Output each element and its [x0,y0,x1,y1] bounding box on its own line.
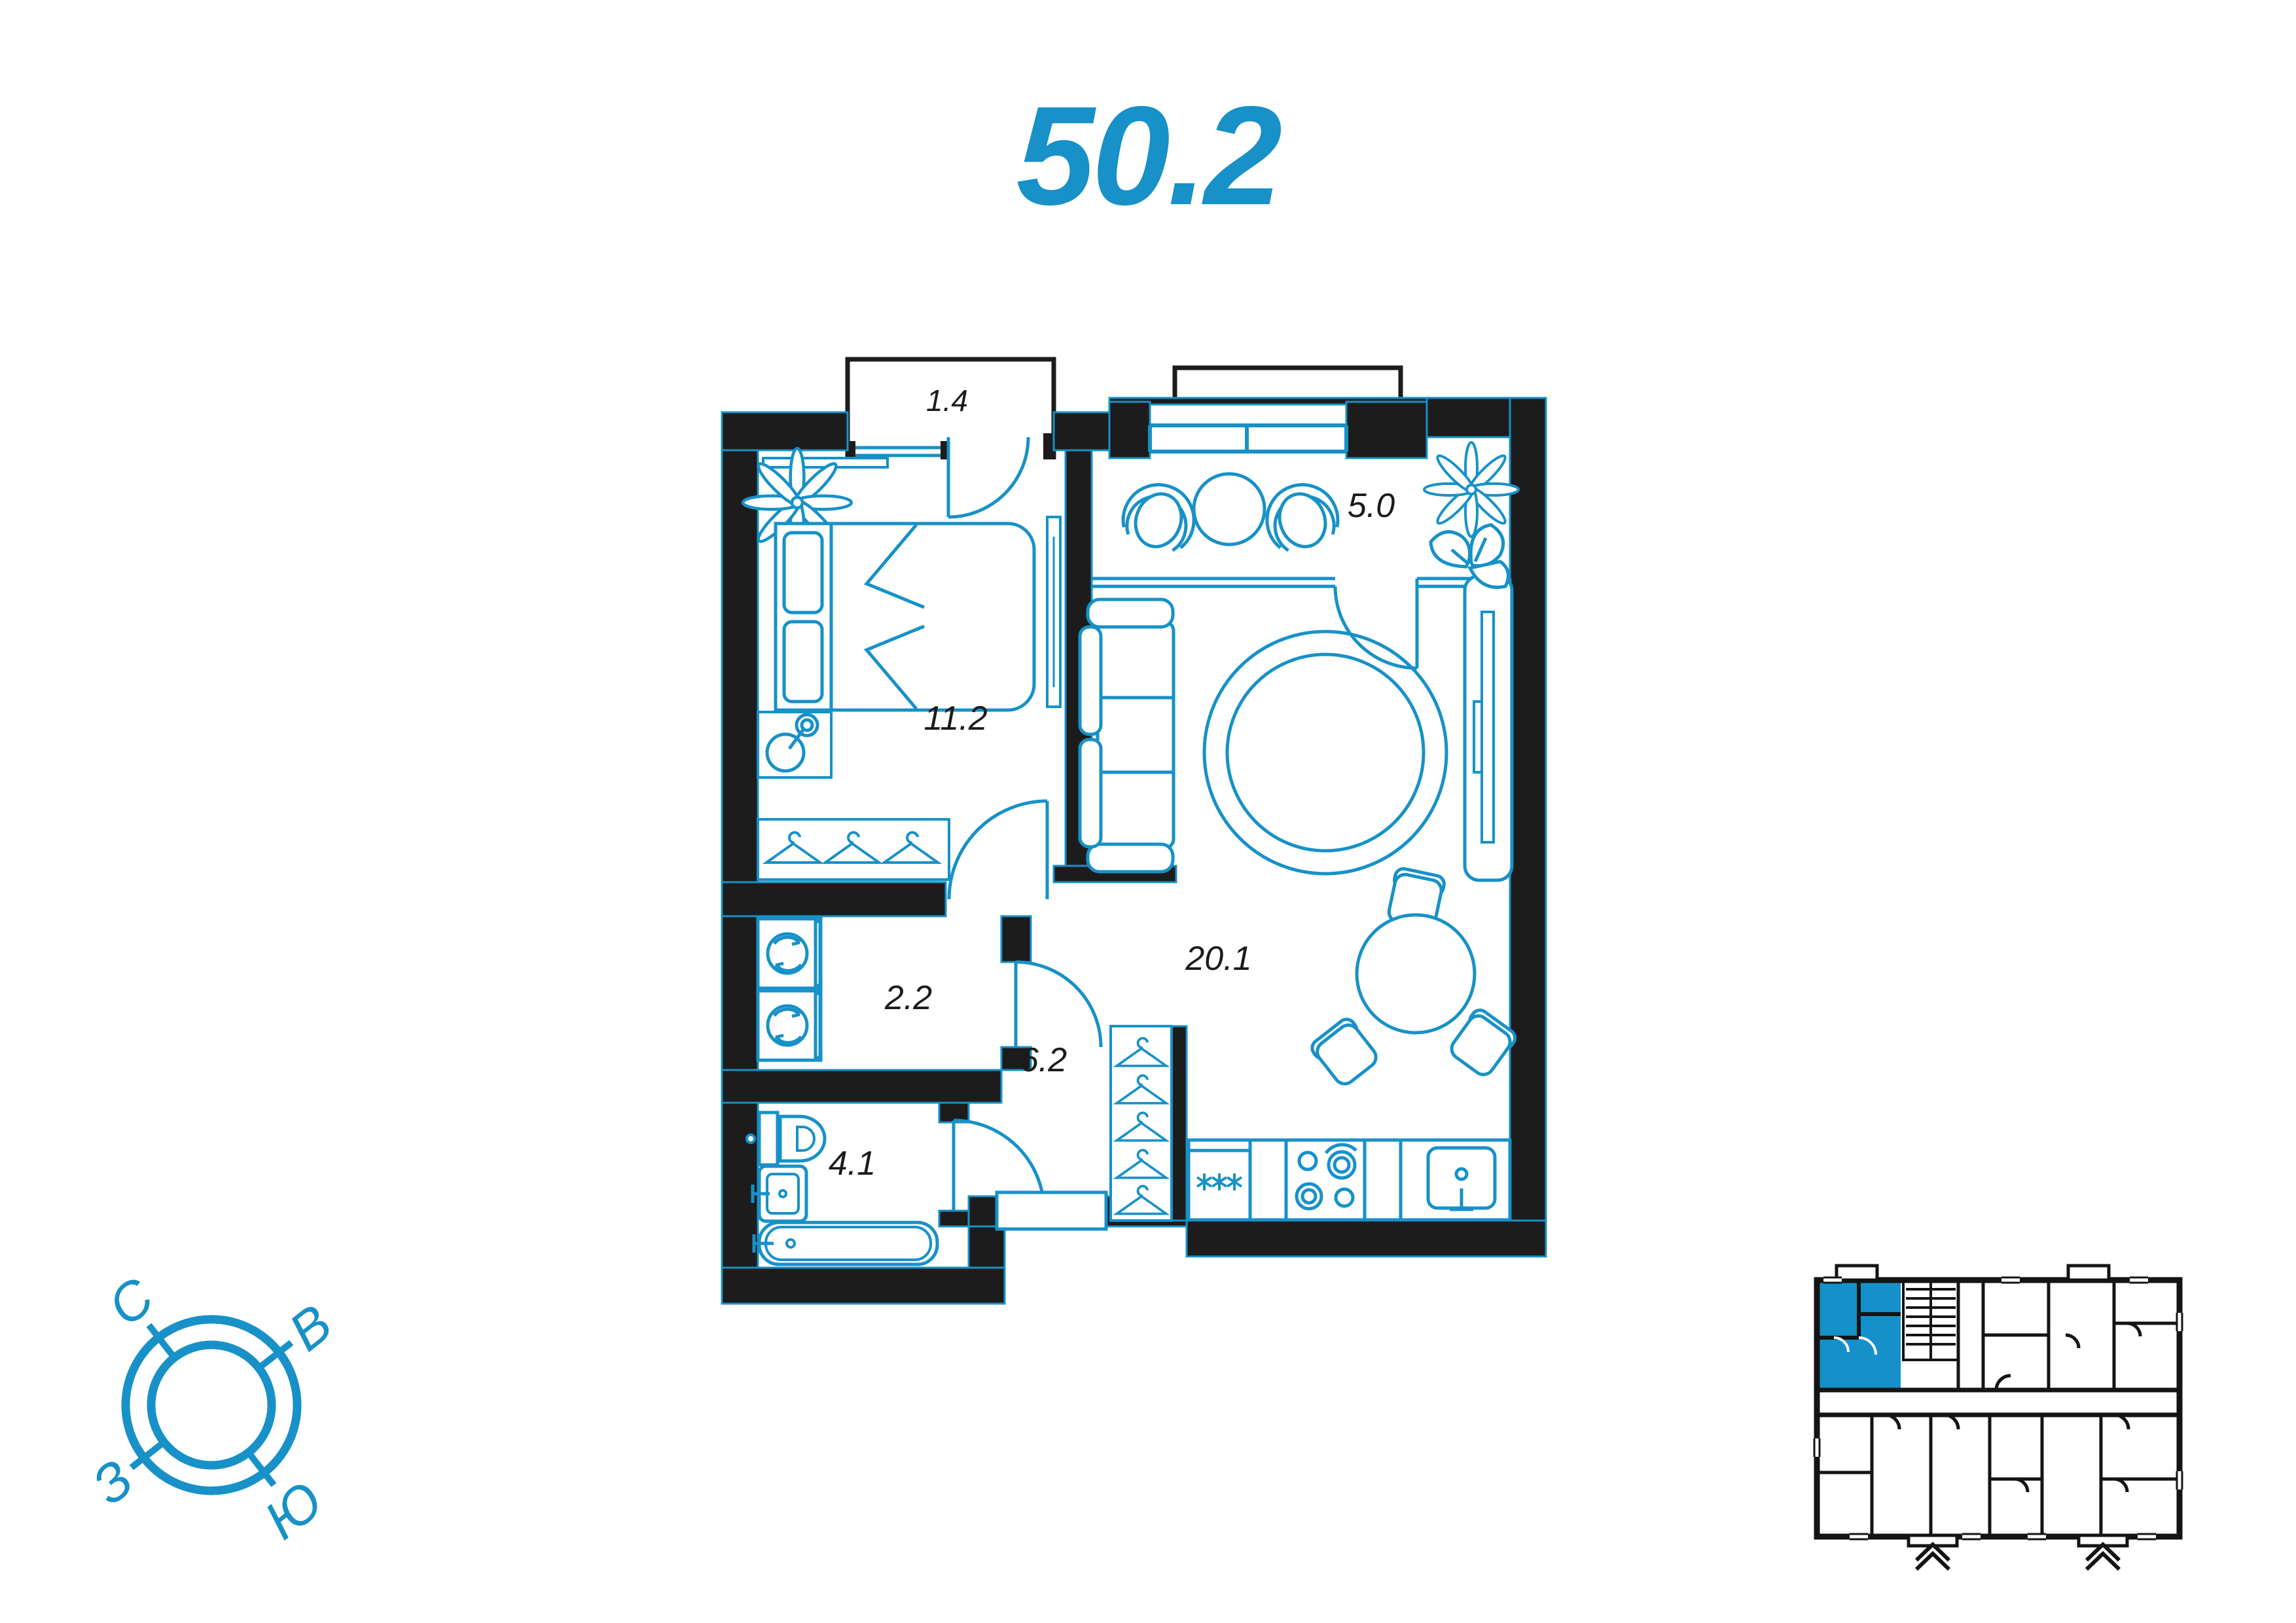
key-plan [1814,1266,2182,1569]
room-label-balcony: 1.4 [926,383,968,418]
entrance-door [997,1192,1106,1229]
key-plan-corridor [1817,1390,2179,1415]
room-label-bedroom: 11.2 [924,700,987,738]
bathtub-icon [753,1222,937,1264]
compass: С В Ю З [1,1190,425,1622]
washer-icon [758,919,821,988]
dining-set [1309,867,1518,1089]
compass-south: Ю [254,1470,334,1550]
double-bed [776,524,1034,710]
dining-table [1357,915,1475,1033]
kitchen-sink-icon [1428,1148,1495,1209]
room-label-storage: 2.2 [884,979,932,1017]
balcony-window [853,448,944,455]
room-label-bathroom: 4.1 [829,1145,876,1183]
hallway-rack [1111,1026,1172,1221]
toilet-icon [747,1113,825,1165]
key-plan-entrance-arrows [1916,1544,2119,1569]
washer-icon [758,991,821,1060]
chair [1116,475,1204,558]
compass-east: В [278,1293,343,1362]
nightstand-lamp [758,712,831,777]
storage-furniture [758,919,821,1060]
loggia-top-window [1150,425,1346,452]
compass-west: З [81,1449,144,1516]
room-label-living: 20.1 [1185,940,1251,978]
bedroom-furniture [743,448,1060,880]
compass-north: С [98,1266,165,1338]
page-title: 50.2 [1016,77,1282,234]
floorplan-canvas: 50.2 [0,0,2296,1623]
sofa [1080,599,1174,872]
bathroom-furniture [747,1113,937,1264]
main-floor-plan: 1.4 5.0 11.2 2.2 20.1 6.2 4.1 [722,359,1546,1304]
round-table [1194,474,1265,544]
key-plan-stairs [1903,1280,1958,1360]
room-label-loggia: 5.0 [1348,487,1395,525]
loggia-glazing [1175,368,1401,399]
living-room-furniture [1080,525,1518,1089]
tv-cabinet [1465,576,1512,880]
round-rug [1204,632,1446,874]
chair [1257,475,1345,558]
kitchen-counter [1189,1140,1510,1220]
plant-icon [1424,442,1518,537]
wardrobe-hangers [758,819,949,880]
room-label-hallway: 6.2 [1020,1041,1067,1079]
key-plan-balcony [1837,1266,1877,1280]
floorplan-page: { "title": "50.2", "rooms": [ {"name": "… [0,0,2296,1623]
bath-sink-icon [751,1166,806,1221]
